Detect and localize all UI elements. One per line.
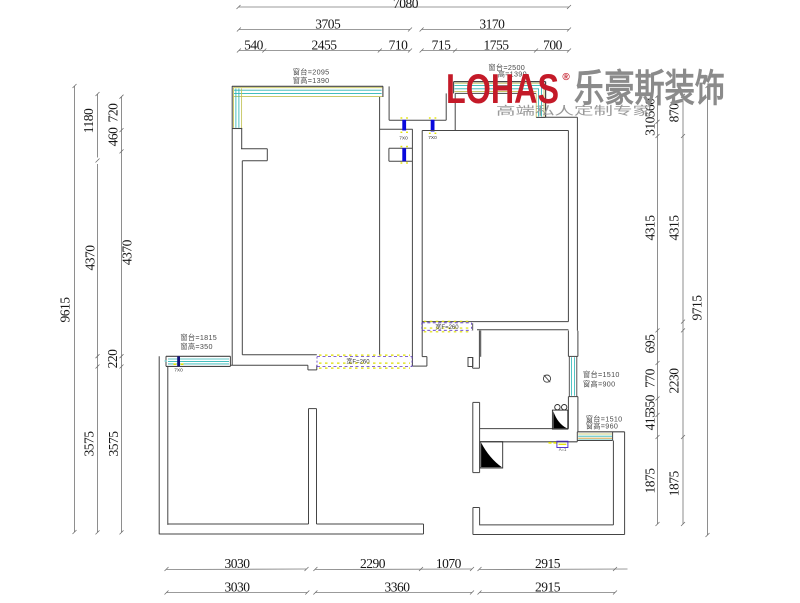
svg-text:7X0: 7X0	[428, 135, 437, 141]
svg-text:3170: 3170	[479, 16, 505, 31]
svg-text:415: 415	[643, 411, 658, 431]
svg-text:2915: 2915	[535, 556, 561, 571]
svg-text:770: 770	[643, 368, 658, 388]
svg-text:窗高=960: 窗高=960	[586, 422, 618, 431]
svg-text:695: 695	[643, 334, 658, 354]
svg-text:4315: 4315	[667, 215, 682, 241]
svg-text:3030: 3030	[225, 556, 251, 571]
svg-text:7X0: 7X0	[174, 367, 183, 373]
svg-text:3575: 3575	[106, 431, 121, 457]
svg-text:2915: 2915	[535, 579, 561, 594]
svg-text:3705: 3705	[315, 16, 341, 31]
svg-text:2230: 2230	[667, 368, 682, 394]
svg-text:宽F=260: 宽F=260	[435, 323, 459, 331]
svg-text:715: 715	[432, 37, 452, 52]
svg-text:350: 350	[643, 394, 658, 414]
svg-text:®: ®	[562, 72, 570, 83]
svg-text:9615: 9615	[58, 297, 73, 323]
svg-text:1755: 1755	[484, 37, 510, 52]
svg-text:700: 700	[543, 37, 563, 52]
svg-text:宽F=260: 宽F=260	[346, 358, 370, 366]
svg-text:1875: 1875	[643, 468, 658, 494]
svg-text:窗高=1390: 窗高=1390	[293, 76, 330, 85]
svg-text:9715: 9715	[690, 295, 705, 321]
svg-text:窗高=350: 窗高=350	[180, 342, 212, 351]
svg-text:220: 220	[105, 349, 120, 369]
svg-text:1875: 1875	[667, 470, 682, 496]
svg-text:4315: 4315	[643, 215, 658, 241]
svg-text:高端私人定制专家: 高端私人定制专家	[496, 104, 653, 118]
svg-text:460: 460	[106, 127, 121, 147]
svg-text:7X0: 7X0	[399, 136, 408, 142]
svg-text:3575: 3575	[82, 431, 97, 457]
svg-text:乐豪斯装饰: 乐豪斯装饰	[574, 69, 725, 111]
svg-text:3030: 3030	[225, 579, 251, 594]
svg-text:2455: 2455	[312, 37, 338, 52]
svg-text:7080: 7080	[393, 0, 419, 11]
svg-text:3360: 3360	[385, 579, 411, 594]
svg-text:1180: 1180	[81, 108, 96, 133]
svg-text:540: 540	[244, 37, 264, 52]
svg-text:A=1: A=1	[559, 447, 567, 452]
svg-text:710: 710	[389, 37, 409, 52]
svg-text:窗高=900: 窗高=900	[583, 380, 615, 389]
svg-text:310: 310	[643, 116, 658, 136]
svg-text:1070: 1070	[436, 556, 462, 571]
svg-text:4370: 4370	[83, 245, 98, 271]
svg-text:窗台=1510: 窗台=1510	[583, 370, 620, 379]
svg-text:720: 720	[106, 103, 121, 123]
svg-text:2290: 2290	[360, 556, 386, 571]
svg-text:4370: 4370	[120, 239, 135, 265]
